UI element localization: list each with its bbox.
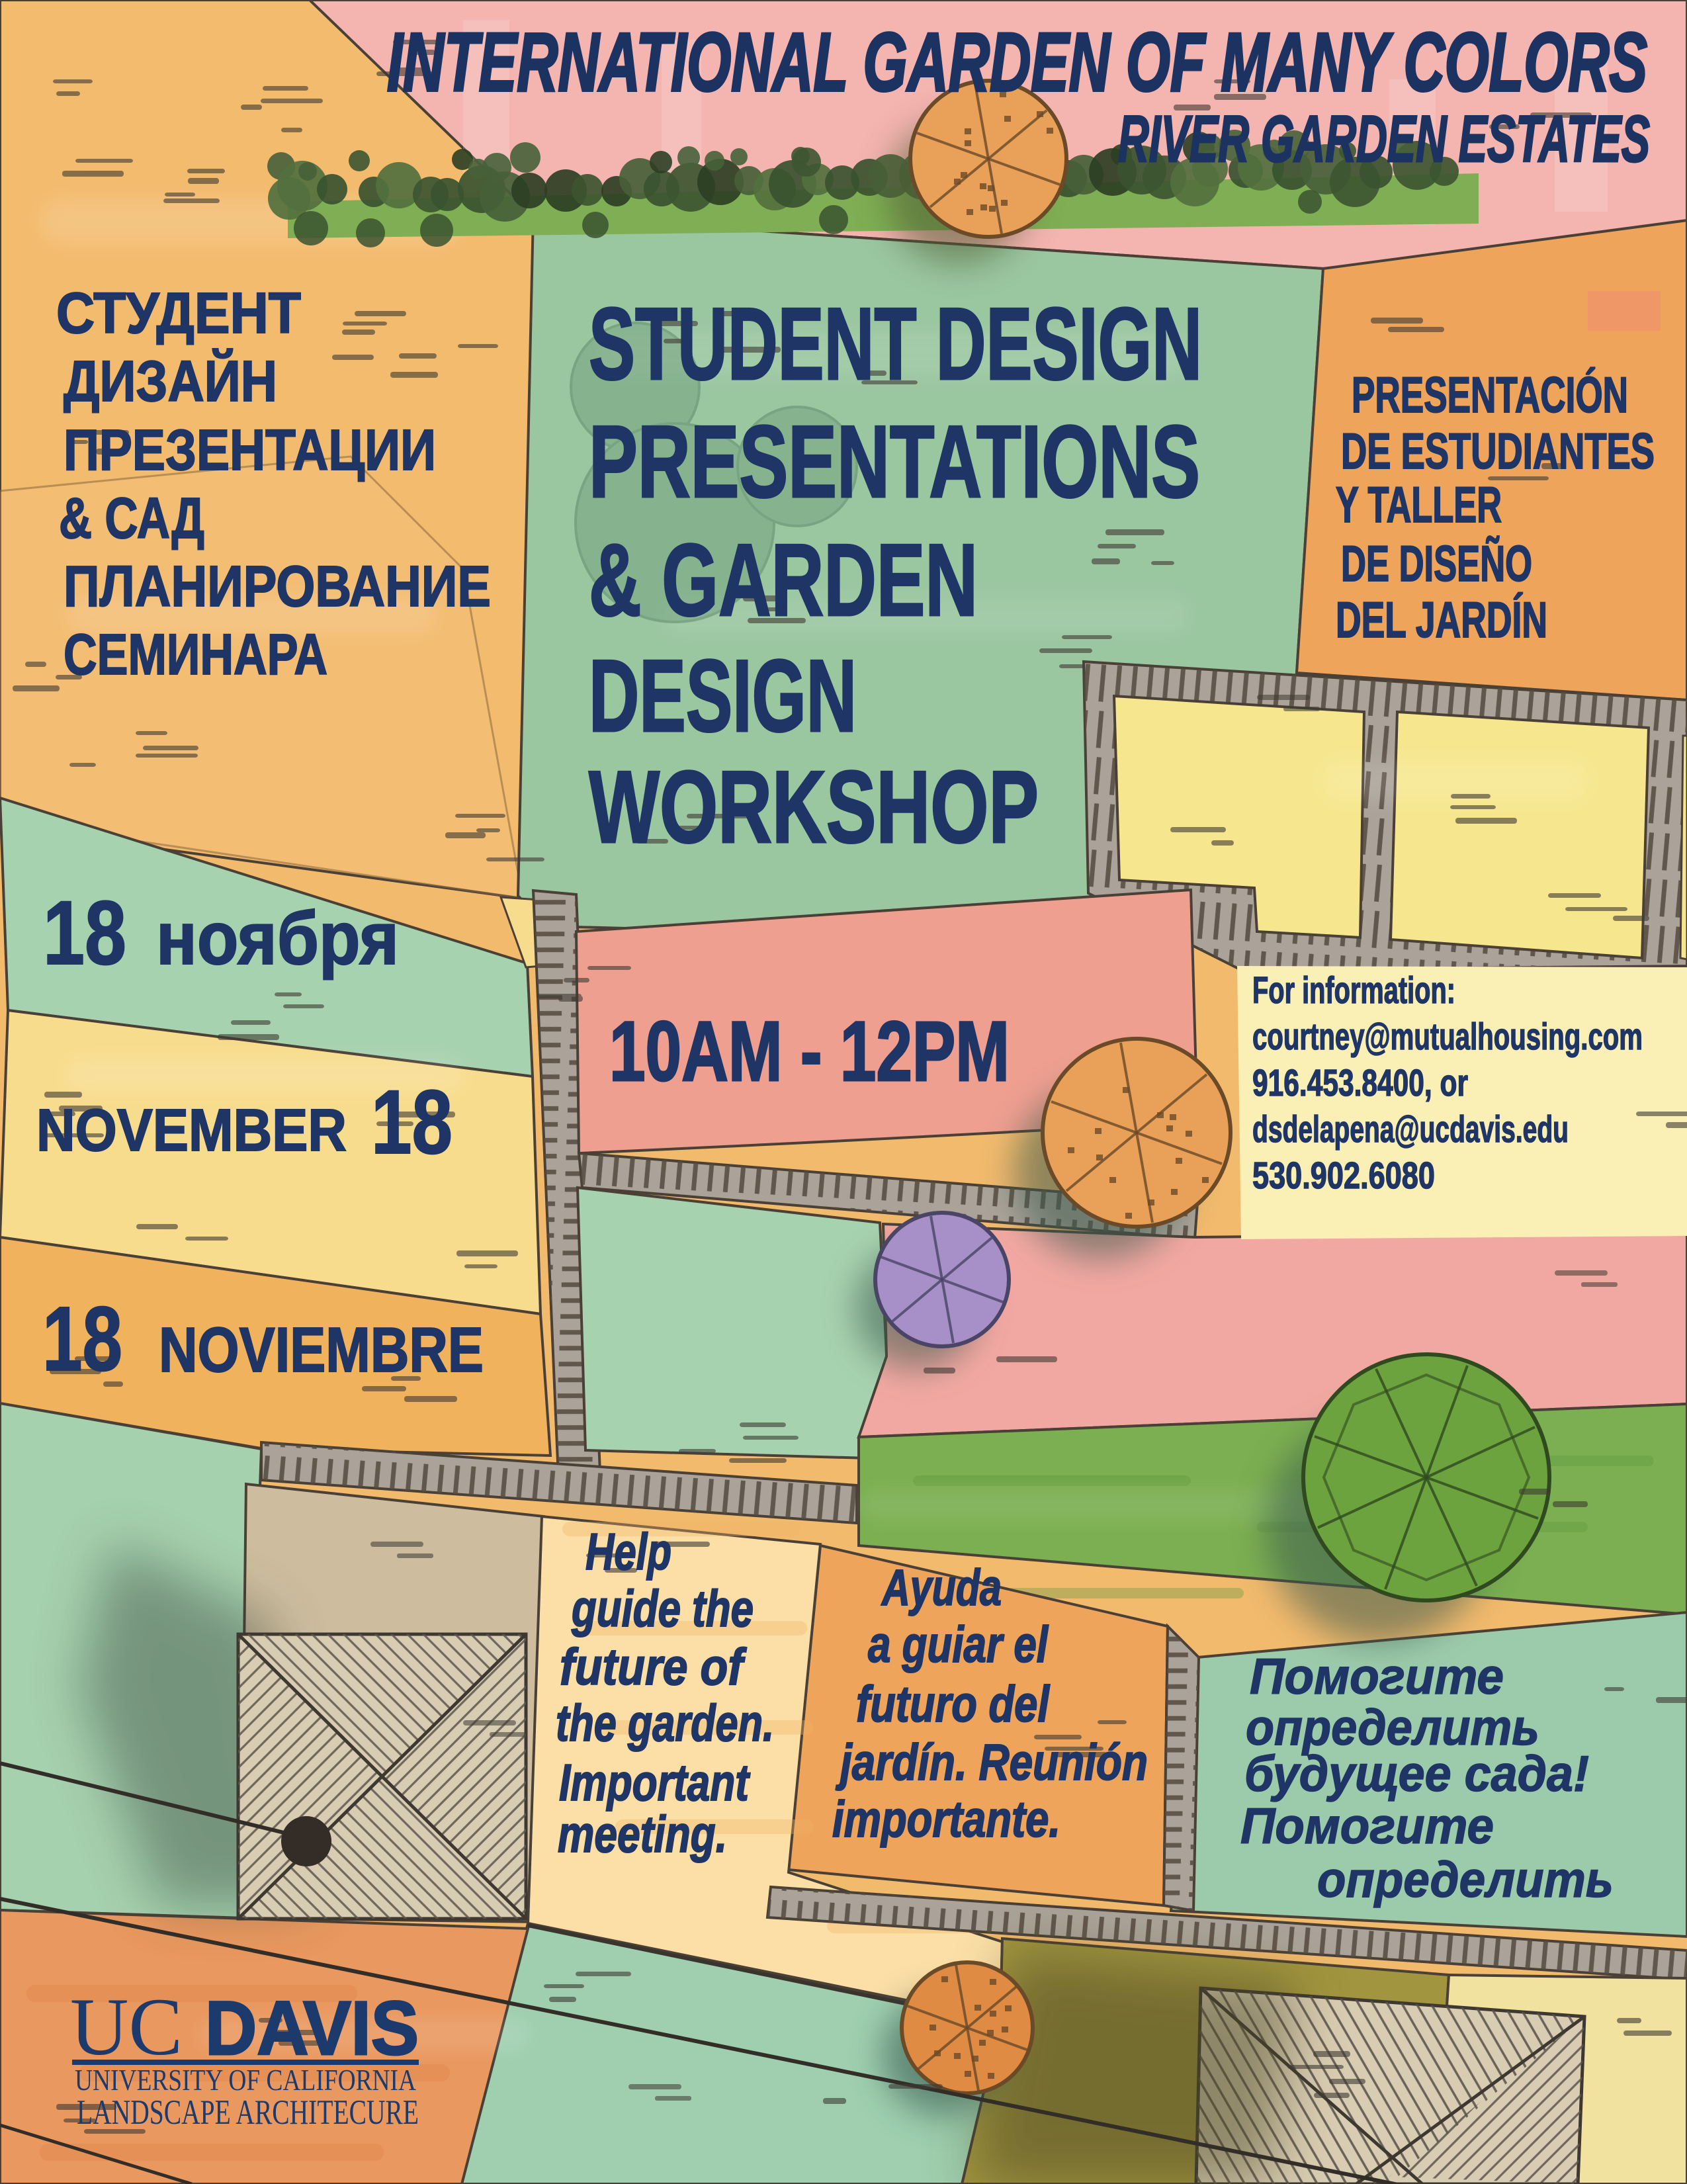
svg-text:ПЛАНИРОВАНИЕ: ПЛАНИРОВАНИЕ bbox=[64, 554, 491, 619]
svg-text:18: 18 bbox=[371, 1072, 453, 1173]
svg-text:guide the: guide the bbox=[571, 1579, 754, 1638]
svg-text:ноября: ноября bbox=[156, 896, 399, 980]
svg-text:Ayuda: Ayuda bbox=[881, 1559, 1002, 1616]
svg-text:& САД: & САД bbox=[59, 486, 204, 550]
svg-text:meeting.: meeting. bbox=[558, 1805, 727, 1863]
svg-text:RIVER GARDEN ESTATES: RIVER GARDEN ESTATES bbox=[1118, 102, 1650, 175]
svg-text:Help: Help bbox=[585, 1522, 671, 1581]
svg-text:определить: определить bbox=[1317, 1852, 1614, 1908]
svg-text:DAVIS: DAVIS bbox=[205, 1986, 419, 2071]
svg-text:INTERNATIONAL GARDEN OF MANY C: INTERNATIONAL GARDEN OF MANY COLORS bbox=[387, 17, 1647, 109]
svg-text:STUDENT DESIGN: STUDENT DESIGN bbox=[589, 286, 1202, 401]
svg-text:courtney@mutualhousing.com: courtney@mutualhousing.com bbox=[1252, 1016, 1643, 1058]
svg-text:Y TALLER: Y TALLER bbox=[1336, 477, 1502, 533]
svg-text:For information:: For information: bbox=[1252, 969, 1455, 1012]
svg-text:DESIGN: DESIGN bbox=[589, 638, 857, 753]
svg-text:СТУДЕНТ: СТУДЕНТ bbox=[56, 281, 301, 345]
svg-text:10AM - 12PM: 10AM - 12PM bbox=[609, 1004, 1010, 1099]
svg-text:Помогите: Помогите bbox=[1250, 1649, 1504, 1705]
svg-text:СЕМИНАРА: СЕМИНАРА bbox=[64, 623, 327, 687]
svg-text:LANDSCAPE ARCHITECURE: LANDSCAPE ARCHITECURE bbox=[77, 2093, 419, 2132]
svg-text:ДИЗАЙН: ДИЗАЙН bbox=[64, 349, 277, 414]
svg-text:Important: Important bbox=[559, 1753, 750, 1812]
svg-text:jardín. Reunión: jardín. Reunión bbox=[836, 1734, 1148, 1791]
svg-text:UNIVERSITY OF CALIFORNIA: UNIVERSITY OF CALIFORNIA bbox=[75, 2063, 416, 2097]
svg-text:DE ESTUDIANTES: DE ESTUDIANTES bbox=[1341, 423, 1655, 480]
svg-text:18: 18 bbox=[43, 883, 126, 984]
svg-text:importante.: importante. bbox=[832, 1791, 1060, 1848]
svg-text:ПРЕЗЕНТАЦИИ: ПРЕЗЕНТАЦИИ bbox=[64, 418, 436, 482]
svg-text:будущее сада!: будущее сада! bbox=[1244, 1746, 1589, 1802]
svg-text:NOVIEMBRE: NOVIEMBRE bbox=[159, 1315, 484, 1385]
svg-text:UC: UC bbox=[70, 1982, 183, 2072]
svg-text:dsdelapena@ucdavis.edu: dsdelapena@ucdavis.edu bbox=[1252, 1108, 1569, 1151]
svg-text:DE DISEÑO: DE DISEÑO bbox=[1341, 536, 1532, 592]
svg-text:future of: future of bbox=[560, 1638, 747, 1696]
svg-text:futuro del: futuro del bbox=[856, 1676, 1050, 1733]
svg-text:Помогите: Помогите bbox=[1240, 1798, 1494, 1855]
svg-text:the garden.: the garden. bbox=[556, 1694, 774, 1752]
svg-text:& GARDEN: & GARDEN bbox=[589, 523, 978, 637]
svg-text:WORKSHOP: WORKSHOP bbox=[589, 750, 1039, 864]
svg-text:916.453.8400, or: 916.453.8400, or bbox=[1252, 1062, 1468, 1104]
svg-text:a guiar el: a guiar el bbox=[868, 1616, 1049, 1673]
svg-text:PRESENTACIÓN: PRESENTACIÓN bbox=[1352, 367, 1628, 423]
svg-text:PRESENTATIONS: PRESENTATIONS bbox=[589, 404, 1200, 519]
svg-text:530.902.6080: 530.902.6080 bbox=[1252, 1155, 1435, 1197]
svg-text:18: 18 bbox=[42, 1288, 122, 1390]
svg-text:NOVEMBER: NOVEMBER bbox=[36, 1098, 347, 1164]
svg-text:DEL JARDÍN: DEL JARDÍN bbox=[1336, 592, 1547, 648]
